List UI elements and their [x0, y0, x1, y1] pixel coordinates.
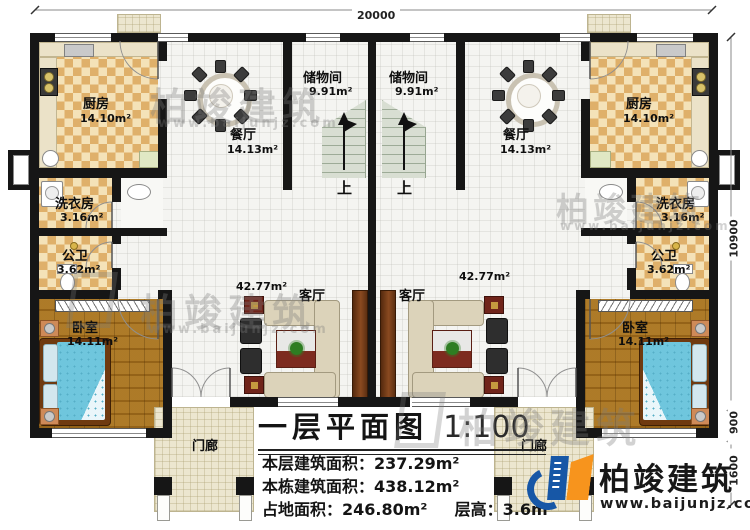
wardrobe: [598, 300, 693, 312]
room-label-porch-left: 门廊: [192, 440, 218, 453]
double-sink: [656, 44, 686, 57]
sofa: [264, 372, 336, 398]
watermark-building-icon: [66, 272, 118, 328]
stat-label: 占地面积：: [262, 500, 342, 519]
niche-window: [13, 155, 29, 185]
room-area-living-right: 42.77m²: [459, 271, 510, 282]
burner: [696, 72, 706, 82]
double-sink: [64, 44, 94, 57]
room-area-bedroom-left: 14.11m²: [67, 336, 118, 347]
stairs-up-label-left: 上: [337, 181, 352, 196]
pillow: [692, 344, 707, 382]
round-sink: [691, 150, 708, 167]
wall-kitchen-south-left: [30, 168, 167, 178]
counter-board: [590, 151, 611, 168]
niche-window: [719, 155, 735, 185]
watermark-url: www.baijunjz.com: [148, 322, 329, 337]
room-area-bath-right: 3.62m²: [647, 264, 690, 275]
room-label-kitchen-right: 厨房: [626, 98, 652, 111]
watermark-text: 柏竣建筑: [458, 396, 642, 454]
window: [158, 33, 188, 42]
dining-table-center: [517, 84, 541, 108]
nightstand-lamp: [695, 323, 706, 334]
chair: [215, 60, 226, 73]
awning-left: [117, 14, 161, 33]
room-label-living-right: 客厅: [399, 290, 425, 303]
round-sink: [42, 150, 59, 167]
room-label-storage-right: 储物间: [389, 72, 428, 85]
basin: [127, 184, 151, 200]
wall-stub: [581, 41, 590, 61]
porch-column-left-a: [154, 477, 172, 495]
stat-label: 本栋建筑面积：: [262, 477, 374, 496]
wall-divider-left: [30, 228, 120, 236]
wall-storage-right: [456, 41, 465, 190]
chair: [492, 90, 505, 101]
logo-tower-orange-icon: [566, 454, 594, 500]
dim-width: 20000: [352, 9, 400, 22]
room-label-bedroom-right: 卧室: [622, 322, 648, 335]
dim-height-bay: 900: [728, 401, 741, 445]
nightstand-lamp: [44, 323, 55, 334]
nightstand-lamp: [695, 411, 706, 422]
brand-site: www.baijunjz.com: [600, 496, 750, 512]
end-table: [244, 376, 264, 394]
room-area-laundry-left: 3.16m²: [60, 212, 103, 223]
room-label-laundry-left: 洗衣房: [55, 198, 94, 211]
room-label-bath-right: 公卫: [651, 250, 677, 263]
window: [637, 33, 693, 42]
room-area-dining-left: 14.13m²: [227, 144, 278, 155]
room-label-dining-right: 餐厅: [503, 129, 529, 142]
stairs-up-label-right: 上: [397, 181, 412, 196]
window: [55, 33, 111, 42]
pillow: [43, 344, 58, 382]
stat-label: 本层建筑面积：: [262, 454, 374, 473]
wall-stub: [158, 41, 167, 61]
nightstand-lamp: [44, 411, 55, 422]
logo-tower-windows: [552, 462, 562, 492]
stat-value: 246.80m²: [342, 500, 427, 519]
chair: [552, 90, 565, 101]
window: [560, 33, 590, 42]
plant: [290, 342, 303, 355]
porch-column-left-b: [236, 477, 254, 495]
stat-value: 237.29m²: [374, 454, 459, 473]
armchair: [240, 348, 262, 374]
watermark-url: www.baijunjz.com: [158, 116, 339, 131]
room-label-kitchen-left: 厨房: [83, 98, 109, 111]
stat-site-area-and-height: 占地面积：246.80m² 层高：3.6m: [262, 496, 548, 520]
armchair: [486, 348, 508, 374]
window: [410, 33, 444, 42]
porch-column-right-a: [494, 477, 512, 495]
room-area-kitchen-right: 14.10m²: [623, 113, 674, 124]
wall-kitchen-west-right: [581, 99, 590, 178]
kitchen-counter: [39, 42, 158, 57]
wall-bath-right: [627, 268, 636, 290]
stat-label: 层高：: [455, 500, 503, 519]
room-area-storage-right: 9.91m²: [395, 86, 438, 97]
wall-bedroom-north-right: [630, 290, 718, 299]
porch-column-base: [157, 495, 170, 521]
wall-kitchen-south-right: [581, 168, 718, 178]
wall-bath-right: [627, 236, 636, 244]
end-table: [484, 296, 504, 314]
floor-plan-canvas: 20000 10900 900 1600 厨房 14.10m² 厨房 14.10…: [0, 0, 750, 530]
tv-wall-left: [352, 290, 368, 400]
kitchen-counter: [590, 42, 709, 57]
awning-right: [587, 14, 631, 33]
bay-window-left: [52, 428, 146, 438]
brand-logo: 柏竣建筑 www.baijunjz.com: [527, 452, 737, 522]
stat-floor-area: 本层建筑面积：237.29m²: [262, 450, 459, 474]
stat-value: 438.12m²: [374, 477, 459, 496]
brand-name: 柏竣建筑: [599, 454, 735, 499]
wall-bath-left: [112, 236, 121, 244]
burner: [44, 72, 54, 82]
end-table: [484, 376, 504, 394]
wall-laundry-left: [112, 178, 121, 202]
window: [306, 33, 340, 42]
burner: [44, 83, 54, 93]
chair: [523, 60, 534, 73]
room-area-bedroom-right: 14.11m²: [618, 336, 669, 347]
mattress: [57, 342, 105, 420]
mattress: [643, 342, 691, 420]
room-area-kitchen-left: 14.10m²: [80, 113, 131, 124]
wall-party: [368, 33, 376, 407]
porch-column-base: [239, 495, 252, 521]
watermark-url: www.baijunjz.com: [560, 219, 731, 233]
tv-wall-right: [380, 290, 396, 400]
room-area-dining-right: 14.13m²: [500, 144, 551, 155]
stat-building-area: 本栋建筑面积：438.12m²: [262, 473, 459, 497]
burner: [696, 83, 706, 93]
armchair: [486, 318, 508, 344]
wall-nook-left: [112, 228, 167, 236]
logo-tower-icon: [547, 456, 569, 500]
plant: [446, 342, 459, 355]
watermark-building-icon: [394, 392, 446, 448]
room-label-bath-left: 公卫: [62, 250, 88, 263]
counter-board: [139, 151, 160, 168]
